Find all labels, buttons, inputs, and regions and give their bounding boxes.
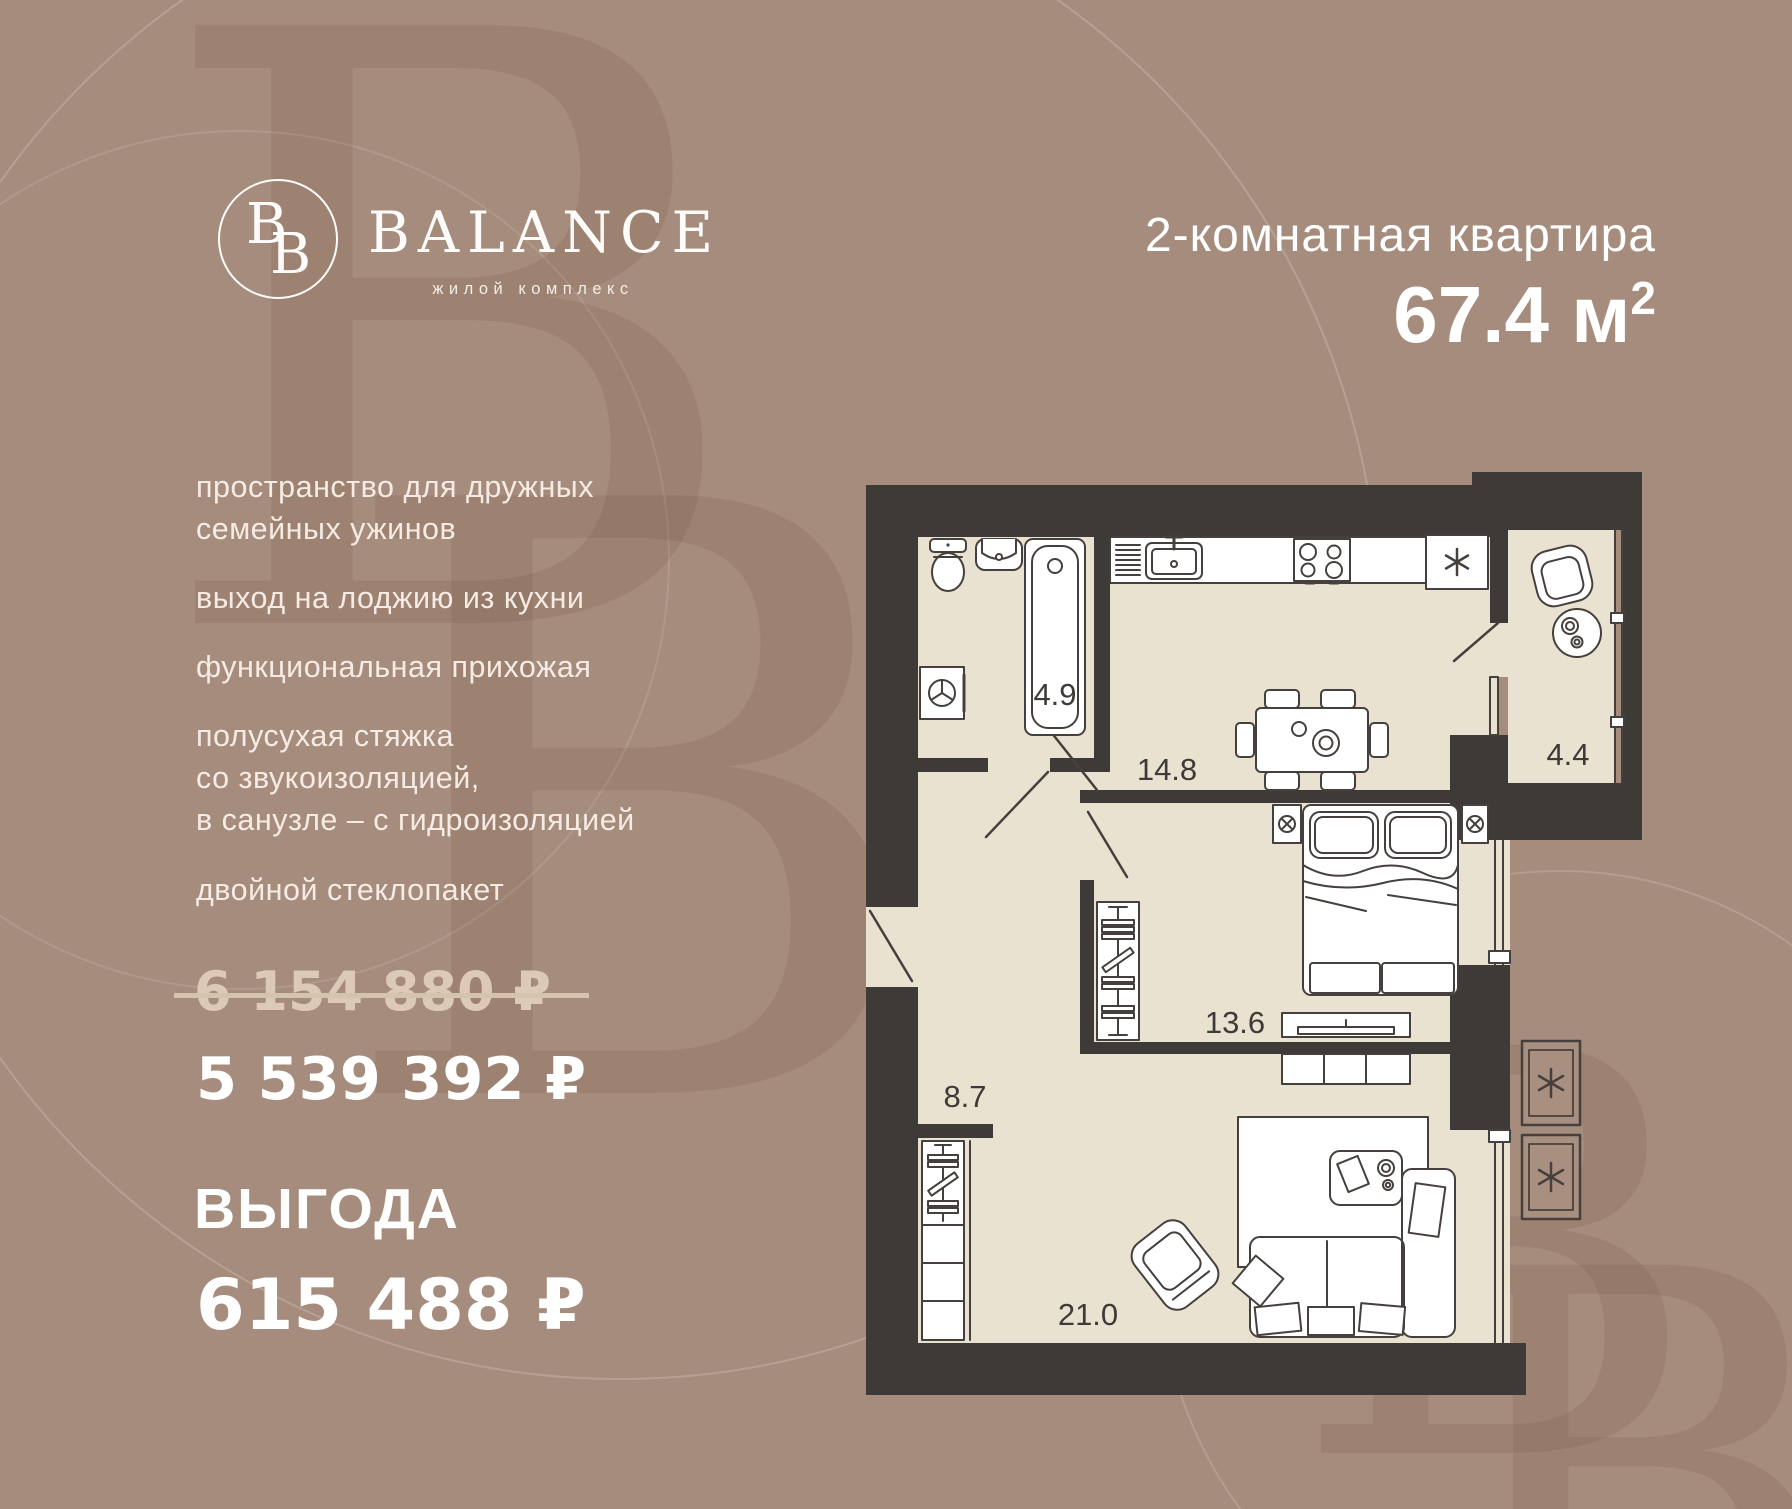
kitchen-sink	[1146, 537, 1202, 579]
toilet	[930, 539, 966, 591]
flyer-canvas: { "colors": { "background": "#a68c7d", "…	[0, 0, 1792, 1509]
feature-item: выход на лоджию из кухни	[196, 577, 716, 619]
area-label-hallway: 8.7	[943, 1079, 986, 1114]
area-label-bathroom: 4.9	[1033, 677, 1076, 712]
bathroom-sink	[976, 539, 1022, 570]
dish-drainer	[1116, 545, 1140, 575]
nightstand-left	[1273, 805, 1301, 843]
loggia-table	[1553, 609, 1601, 657]
area-label-bedroom: 13.6	[1205, 1005, 1265, 1040]
brand-name: BALANCE	[368, 200, 698, 266]
area-label-living-room: 21.0	[1058, 1297, 1118, 1332]
coffee-table	[1330, 1151, 1402, 1205]
apartment-header: 2-комнатная квартира 67.4 м2	[1145, 208, 1656, 361]
stove	[1294, 539, 1350, 583]
living-wardrobe	[922, 1141, 970, 1340]
floor-plan: 4.9 14.8 4.4 8.7 13.6 21.0	[858, 465, 1658, 1415]
apartment-area-superscript: 2	[1630, 272, 1656, 324]
living-media-console	[1282, 1054, 1410, 1084]
apartment-type-title: 2-комнатная квартира	[1145, 208, 1656, 263]
apartment-area-value: 67.4 м	[1393, 270, 1630, 359]
washing-machine	[920, 667, 964, 719]
ac-unit-1	[1522, 1041, 1580, 1125]
kitchen-counter	[1110, 537, 1426, 583]
fridge	[1426, 535, 1488, 589]
hall-wardrobe	[1097, 902, 1139, 1040]
feature-item: пространство для дружных семейных ужинов	[196, 466, 716, 550]
area-label-loggia: 4.4	[1546, 737, 1589, 772]
feature-item: двойной стеклопакет	[196, 869, 716, 911]
feature-item: функциональная прихожая	[196, 646, 716, 688]
benefit-value: 615 488 ₽	[196, 1264, 586, 1346]
loggia-door-sill	[1490, 677, 1498, 735]
bedroom-tv-console	[1282, 1013, 1410, 1037]
area-label-kitchen: 14.8	[1137, 752, 1197, 787]
apartment-area: 67.4 м2	[1145, 269, 1656, 361]
brand-subtitle: жилой комплекс	[368, 280, 698, 299]
feature-item: полусухая стяжка со звукоизоляцией, в са…	[196, 715, 716, 841]
nightstand-right	[1462, 805, 1488, 843]
logo-monogram-b2: B	[270, 227, 311, 283]
brand-logo-circle: B B	[218, 179, 338, 299]
feature-list: пространство для дружных семейных ужинов…	[196, 466, 716, 938]
double-bed	[1303, 805, 1458, 995]
ac-unit-2	[1522, 1135, 1580, 1219]
old-price: 6 154 880 ₽	[194, 960, 551, 1023]
benefit-label: ВЫГОДА	[194, 1176, 460, 1242]
new-price: 5 539 392 ₽	[196, 1044, 586, 1113]
